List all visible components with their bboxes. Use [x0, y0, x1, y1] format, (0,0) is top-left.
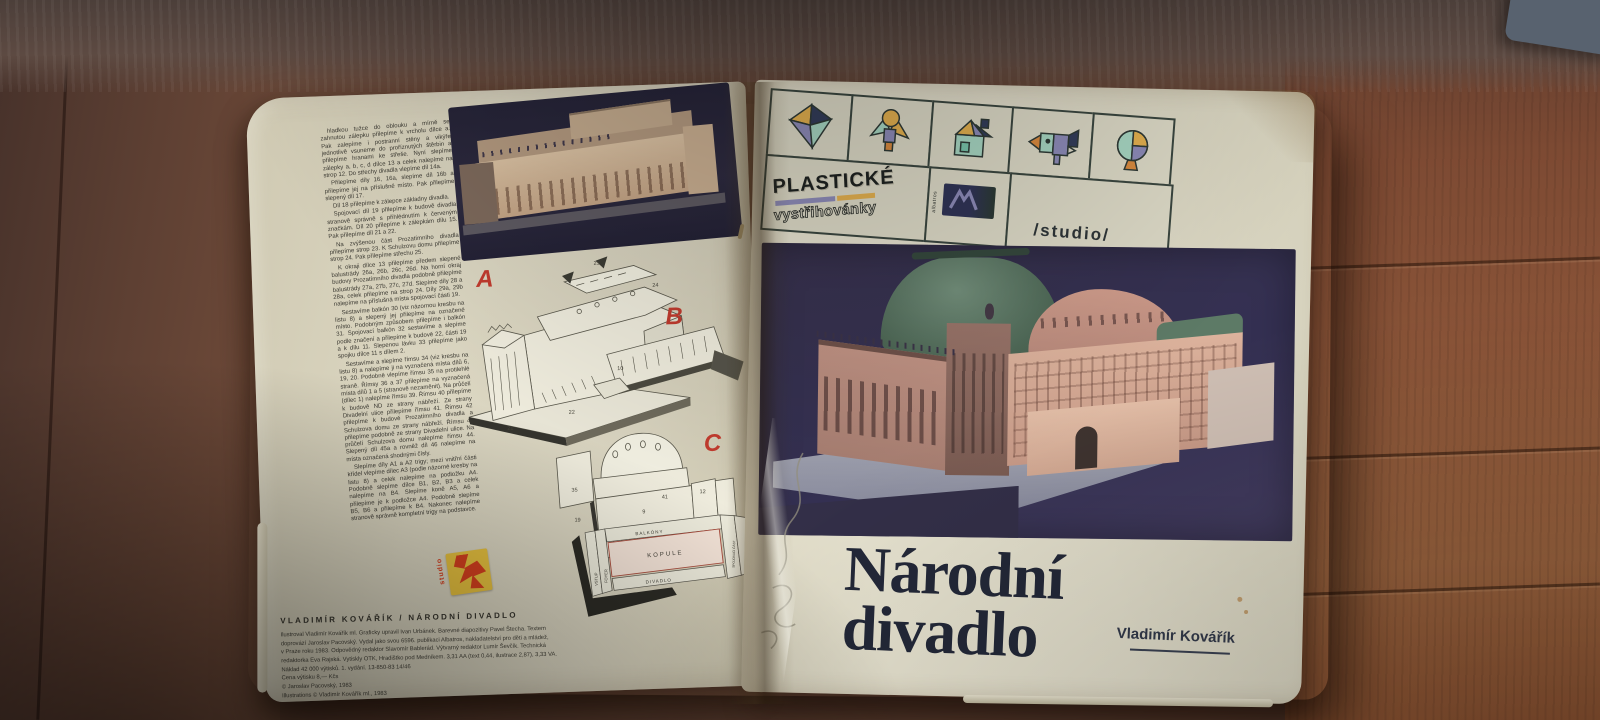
author-underline	[1130, 649, 1230, 655]
booklet-left-page: hladkou tužce do oblouku a mírně se zahn…	[246, 81, 767, 702]
schulz-house-block	[1207, 362, 1274, 448]
stamp-ribbon-shape	[450, 552, 489, 592]
wood-table-left	[0, 0, 280, 720]
plank-line	[1285, 583, 1600, 597]
foxing-spot	[1237, 597, 1242, 602]
title-line-2: divadlo	[841, 599, 1063, 667]
roof-statue	[985, 303, 994, 319]
diagram-label-a: A	[475, 265, 494, 293]
diagram-label-b: B	[665, 303, 683, 331]
logo-header-grid: PLASTICKÉ vystřihovánky albatros	[760, 88, 1187, 261]
plank-line	[1285, 257, 1600, 271]
wood-table-top	[0, 0, 1600, 92]
balloon-tree-icon	[1088, 112, 1176, 186]
model-photo-small	[448, 82, 743, 261]
plank-line	[1285, 447, 1600, 461]
part-number: 23	[593, 261, 599, 267]
albatros-logo	[942, 183, 996, 219]
model-photo-large	[758, 243, 1296, 542]
wood-table-right	[1285, 0, 1600, 720]
part-number: 22	[569, 410, 575, 416]
arched-door	[1075, 425, 1098, 469]
page-corner-curl	[1223, 88, 1317, 162]
part-number: 41	[662, 494, 668, 500]
author-block: Vladimír Kovářík	[1116, 625, 1235, 655]
diagram-label-c: C	[703, 430, 722, 458]
plan-label-vstup: VSTUP	[593, 572, 598, 586]
wood-crack	[36, 0, 70, 719]
credits-title: VLADIMÍR KOVÁŘÍK / NÁRODNÍ DIVADLO	[280, 609, 590, 626]
assembly-diagrams: A B C 23 24 10 21 22 9 41 12 35 19	[445, 237, 773, 660]
part-number: 24	[652, 283, 658, 289]
brand-lockup: PLASTICKÉ vystřihovánky	[772, 166, 896, 224]
loggia-facade	[817, 339, 948, 471]
part-number: 21	[507, 426, 513, 432]
instruction-paragraph: hladkou tužce do oblouku a mírně se zahn…	[320, 119, 454, 180]
plan-label-foyer: FOYER	[603, 569, 608, 583]
publisher-cell: albatros	[924, 166, 1012, 248]
imprint-credits: VLADIMÍR KOVÁŘÍK / NÁRODNÍ DIVADLO Ilust…	[280, 609, 592, 701]
model-right-block	[683, 124, 719, 194]
figure-icon	[846, 94, 934, 168]
stamp-square	[445, 548, 492, 595]
author-name: Vladimír Kovářík	[1116, 625, 1235, 647]
stamp-text: studio	[436, 557, 447, 585]
corner-pavilion	[945, 323, 1011, 476]
part-number: 10	[617, 366, 623, 372]
booklet-cover-page: PLASTICKÉ vystřihovánky albatros	[741, 80, 1315, 705]
studio-label: /studio/	[1033, 220, 1111, 246]
publisher-name: albatros	[931, 191, 939, 213]
part-number: 12	[700, 489, 706, 495]
part-number: 19	[574, 517, 580, 523]
model-left-block	[459, 162, 498, 225]
studio-stamp: studio	[435, 548, 493, 601]
albatros-bird-mark	[950, 191, 977, 210]
cover-title: Národní divadlo	[841, 540, 1065, 667]
foxing-spot	[1244, 610, 1248, 614]
photo-of-booklet-on-table: hladkou tužce do oblouku a mírně se zahn…	[0, 0, 1600, 720]
bird-icon	[1007, 106, 1095, 180]
house-icon	[927, 100, 1015, 174]
part-number: 35	[571, 488, 577, 494]
part-number: 9	[642, 509, 645, 515]
